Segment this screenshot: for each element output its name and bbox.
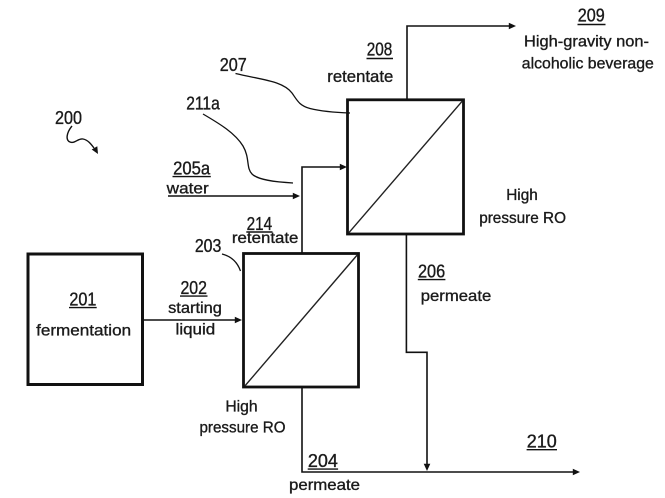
svg-text:retentate: retentate bbox=[232, 230, 299, 247]
svg-text:water: water bbox=[166, 181, 210, 198]
svg-text:201: 201 bbox=[69, 290, 96, 310]
svg-text:permeate: permeate bbox=[421, 288, 492, 305]
svg-text:liquid: liquid bbox=[176, 322, 216, 339]
svg-text:pressure RO: pressure RO bbox=[479, 210, 566, 227]
svg-text:High: High bbox=[506, 187, 538, 204]
svg-text:High-gravity non-: High-gravity non- bbox=[524, 34, 649, 51]
svg-text:206: 206 bbox=[418, 262, 445, 282]
svg-text:209: 209 bbox=[578, 6, 605, 26]
svg-text:fermentation: fermentation bbox=[36, 323, 131, 340]
svg-text:High: High bbox=[225, 399, 257, 416]
svg-text:pressure RO: pressure RO bbox=[200, 420, 286, 437]
svg-text:204: 204 bbox=[308, 451, 338, 471]
svg-text:207: 207 bbox=[220, 55, 247, 75]
svg-text:211a: 211a bbox=[186, 94, 220, 114]
svg-text:203: 203 bbox=[195, 236, 222, 256]
svg-text:205a: 205a bbox=[173, 159, 211, 179]
svg-text:starting: starting bbox=[168, 300, 222, 317]
svg-text:200: 200 bbox=[55, 108, 82, 128]
svg-text:permeate: permeate bbox=[289, 477, 360, 494]
svg-text:202: 202 bbox=[180, 278, 207, 298]
svg-text:210: 210 bbox=[527, 432, 557, 452]
svg-text:retentate: retentate bbox=[327, 68, 393, 86]
svg-text:alcoholic beverage: alcoholic beverage bbox=[522, 56, 654, 73]
svg-text:208: 208 bbox=[367, 40, 393, 60]
